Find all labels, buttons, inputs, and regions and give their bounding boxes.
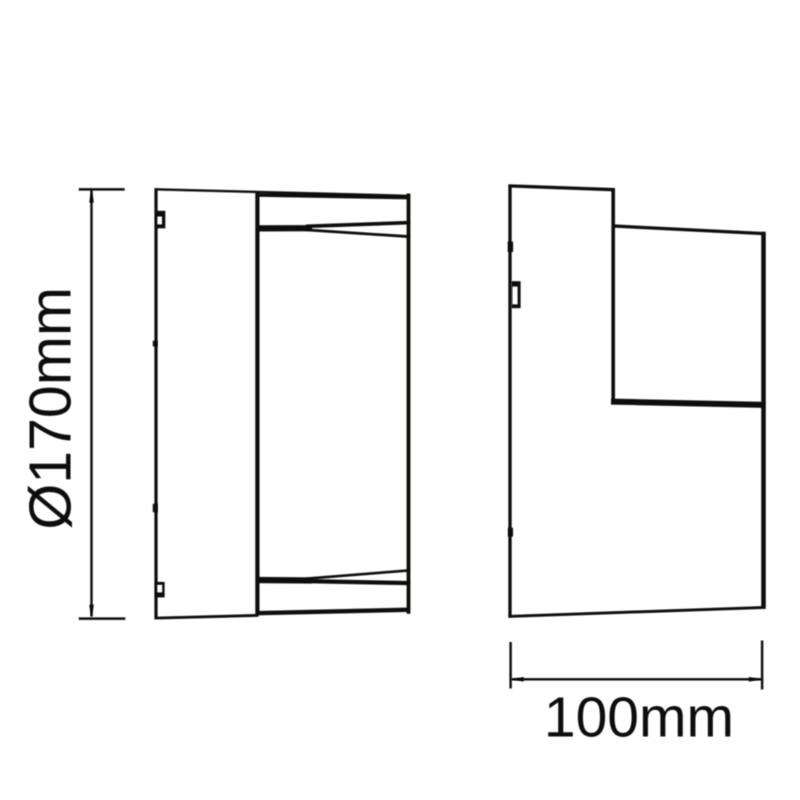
svg-text:Ø170mm: Ø170mm [18,287,84,530]
svg-text:100mm: 100mm [544,686,734,750]
